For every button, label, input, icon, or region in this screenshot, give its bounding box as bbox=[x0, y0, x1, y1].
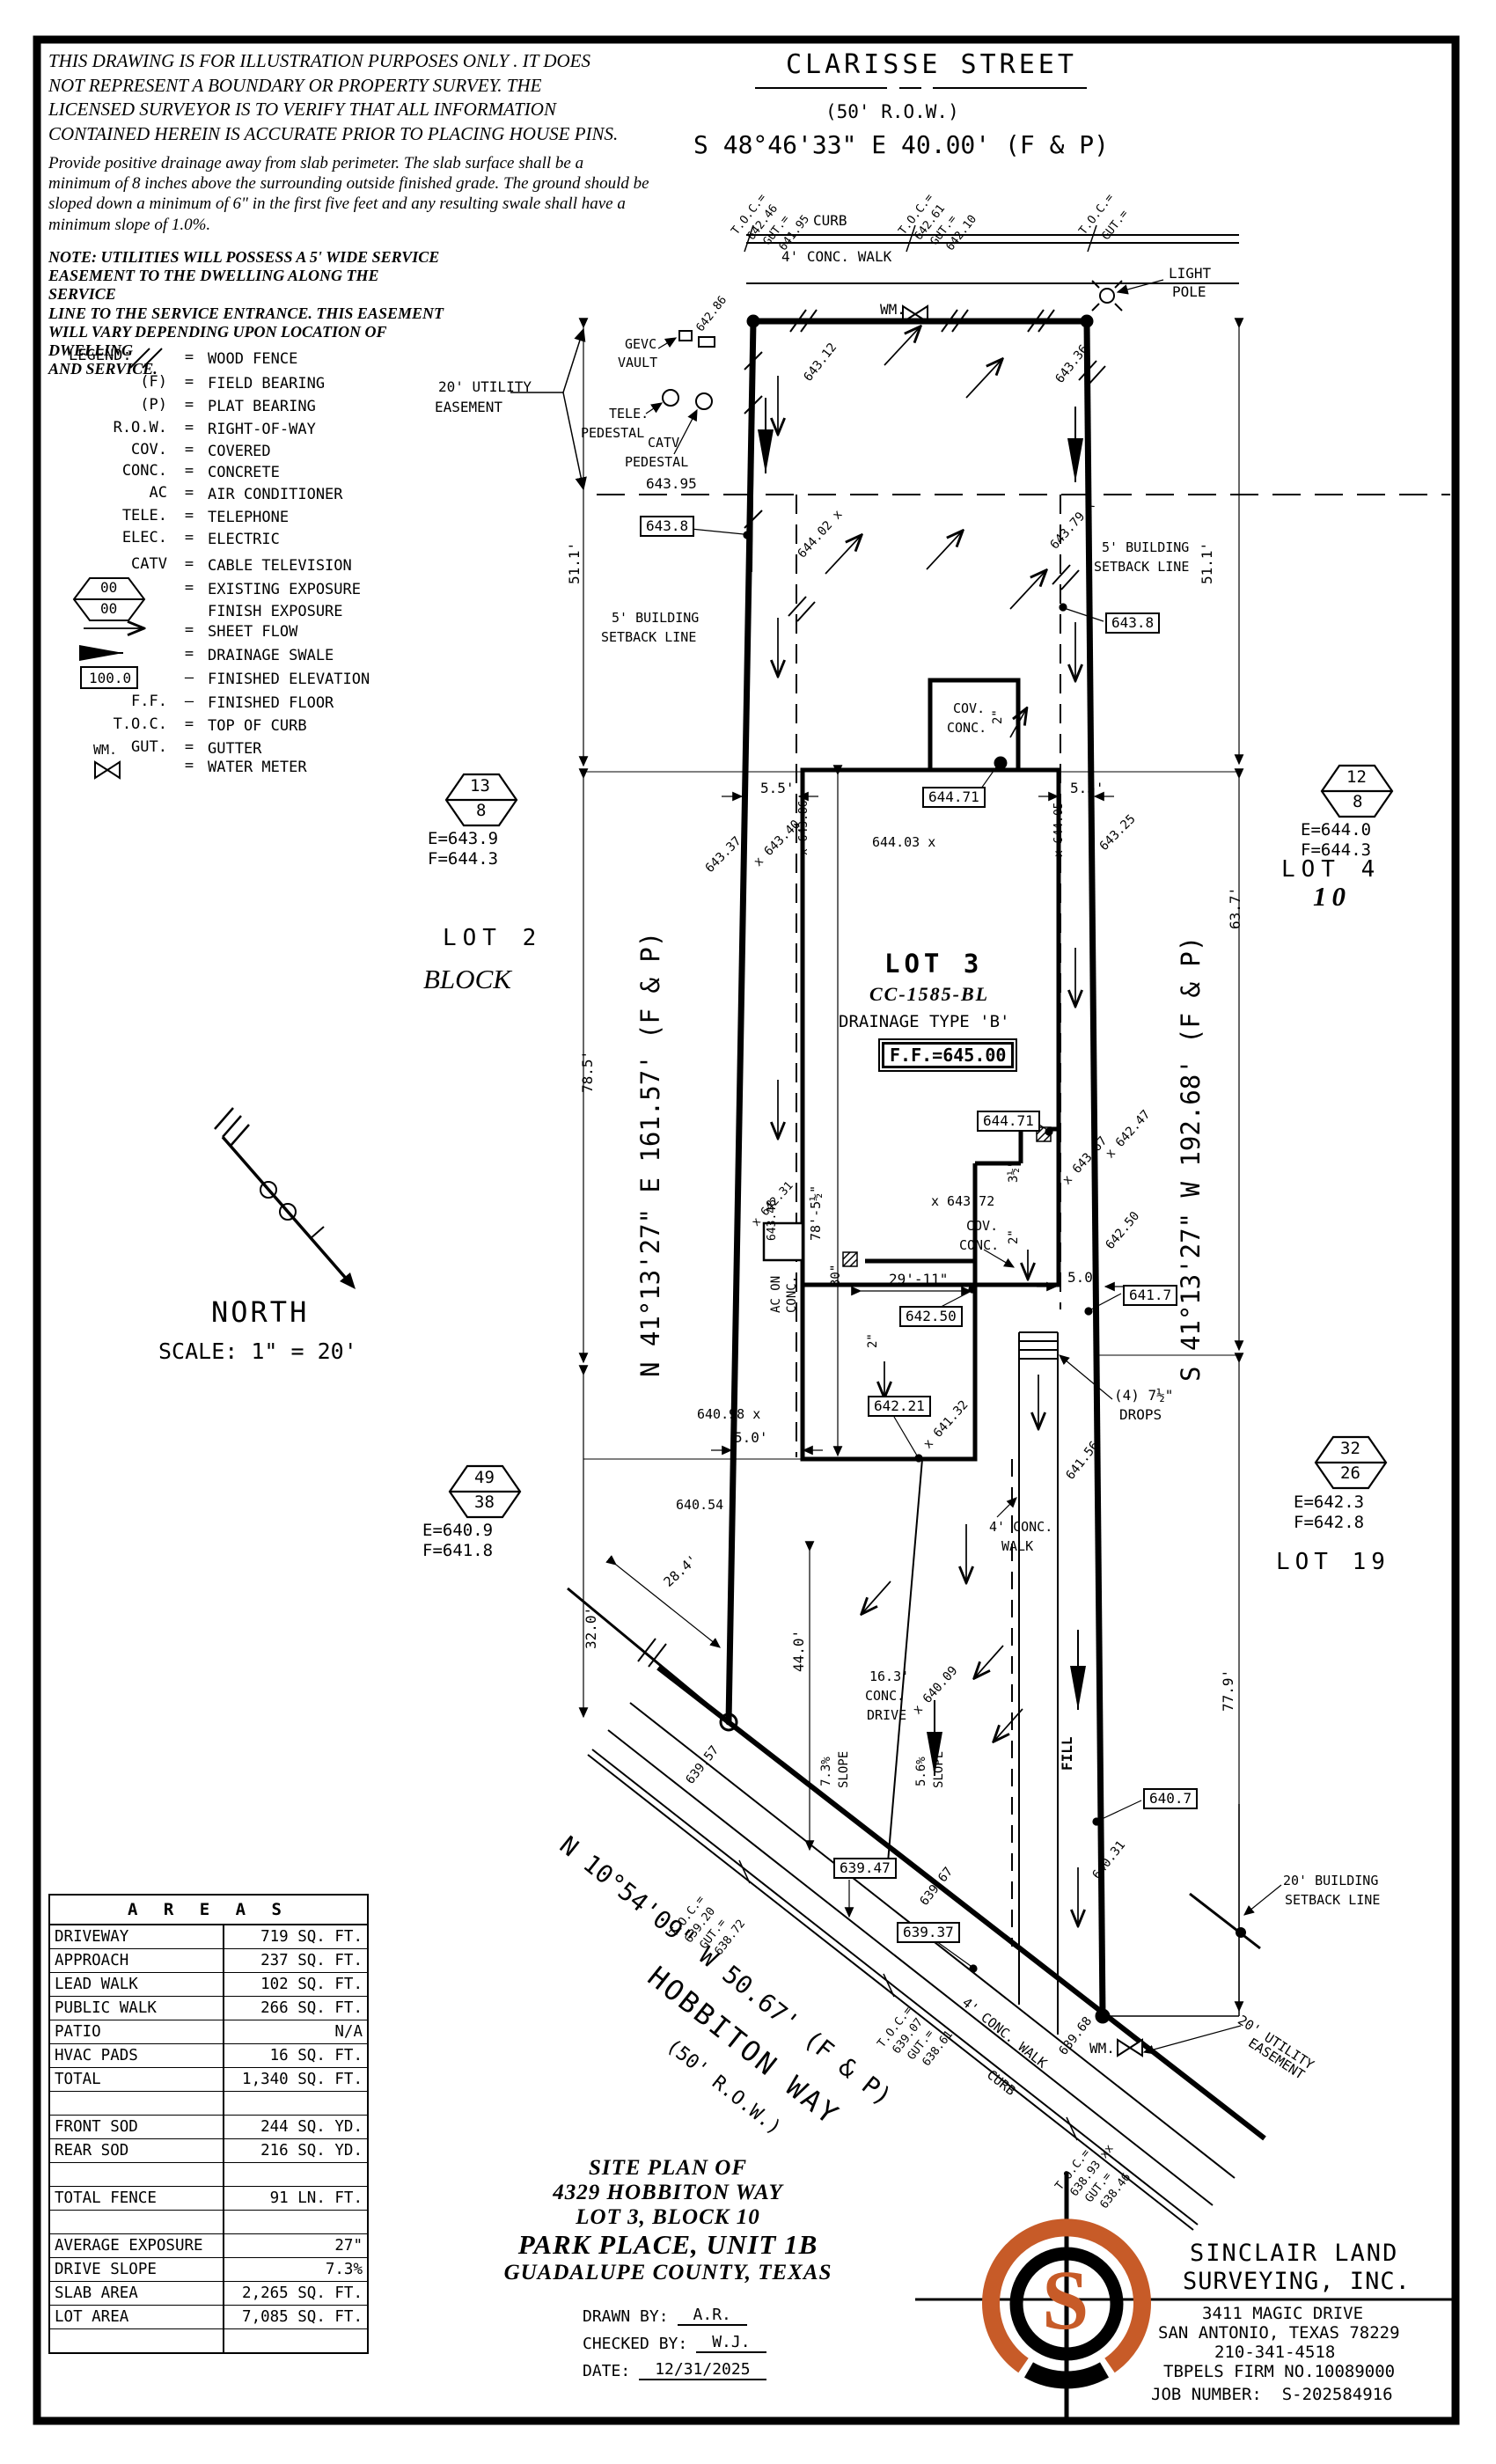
areas-value: 1,340 SQ. FT. bbox=[224, 2068, 368, 2092]
areas-value: 216 SQ. YD. bbox=[224, 2139, 368, 2163]
areas-value: 237 SQ. FT. bbox=[224, 1949, 368, 1973]
areas-value: 7.3% bbox=[224, 2258, 368, 2282]
areas-label: PUBLIC WALK bbox=[49, 1997, 224, 2020]
tele-pedestal-icon bbox=[663, 390, 678, 406]
areas-label bbox=[49, 2163, 224, 2187]
areas-label bbox=[49, 2092, 224, 2116]
areas-row-total-fence: TOTAL FENCE91 LN. FT. bbox=[49, 2187, 368, 2211]
areas-row-blank-12 bbox=[49, 2211, 368, 2234]
wood-fence-icon bbox=[130, 348, 162, 368]
areas-value bbox=[224, 2329, 368, 2354]
water-meter-icon bbox=[95, 762, 120, 778]
title-line-2: 4329 HOBBITON WAY bbox=[458, 2181, 878, 2205]
signoff-value: W.J. bbox=[696, 2333, 766, 2353]
areas-row-drive-slope: DRIVE SLOPE7.3% bbox=[49, 2258, 368, 2282]
areas-label: LOT AREA bbox=[49, 2306, 224, 2329]
signoff-value: 12/31/2025 bbox=[639, 2360, 766, 2380]
areas-value bbox=[224, 2163, 368, 2187]
areas-value: 16 SQ. FT. bbox=[224, 2044, 368, 2068]
areas-label: REAR SOD bbox=[49, 2139, 224, 2163]
areas-label: DRIVEWAY bbox=[49, 1925, 224, 1949]
areas-row-approach: APPROACH237 SQ. FT. bbox=[49, 1949, 368, 1973]
areas-title: A R E A S bbox=[49, 1895, 368, 1925]
areas-row-blank-7 bbox=[49, 2092, 368, 2116]
porch-cov-conc bbox=[930, 680, 1018, 770]
title-line-3: LOT 3, BLOCK 10 bbox=[458, 2205, 878, 2230]
legend-symbols bbox=[74, 348, 162, 778]
areas-row-total: TOTAL1,340 SQ. FT. bbox=[49, 2068, 368, 2092]
areas-row-blank-17 bbox=[49, 2329, 368, 2354]
areas-row-rear-sod: REAR SOD216 SQ. YD. bbox=[49, 2139, 368, 2163]
areas-label: LEAD WALK bbox=[49, 1973, 224, 1997]
areas-label: AVERAGE EXPOSURE bbox=[49, 2234, 224, 2258]
areas-row-hvac-pads: HVAC PADS16 SQ. FT. bbox=[49, 2044, 368, 2068]
entry-stairs bbox=[1019, 1332, 1058, 1359]
house-footprint bbox=[764, 680, 1059, 2035]
areas-table: A R E A S DRIVEWAY719 SQ. FT.APPROACH237… bbox=[48, 1894, 369, 2354]
exposure-hex-icon bbox=[74, 578, 144, 620]
title-line-1: SITE PLAN OF bbox=[458, 2156, 878, 2181]
areas-label: APPROACH bbox=[49, 1949, 224, 1973]
main-slab bbox=[803, 770, 1059, 1285]
areas-label bbox=[49, 2211, 224, 2234]
water-meter-bottom-icon bbox=[1118, 2040, 1142, 2056]
areas-label: HVAC PADS bbox=[49, 2044, 224, 2068]
areas-value: 7,085 SQ. FT. bbox=[224, 2306, 368, 2329]
areas-label: TOTAL FENCE bbox=[49, 2187, 224, 2211]
areas-value bbox=[224, 2092, 368, 2116]
areas-row-front-sod: FRONT SOD244 SQ. YD. bbox=[49, 2116, 368, 2139]
signoff-checked-by-: CHECKED BY:W.J. bbox=[583, 2333, 766, 2353]
areas-value: 2,265 SQ. FT. bbox=[224, 2282, 368, 2306]
areas-row-slab-area: SLAB AREA2,265 SQ. FT. bbox=[49, 2282, 368, 2306]
north-arrow-icon bbox=[215, 1108, 356, 1289]
areas-label: FRONT SOD bbox=[49, 2116, 224, 2139]
areas-label: TOTAL bbox=[49, 2068, 224, 2092]
site-plan-page: THIS DRAWING IS FOR ILLUSTRATION PURPOSE… bbox=[0, 0, 1496, 2464]
catv-pedestal-icon bbox=[696, 393, 712, 409]
areas-value: 102 SQ. FT. bbox=[224, 1973, 368, 1997]
areas-value: 91 LN. FT. bbox=[224, 2187, 368, 2211]
light-pole-icon bbox=[1100, 289, 1114, 303]
clarisse-street-lines bbox=[510, 88, 1239, 489]
areas-label: DRIVE SLOPE bbox=[49, 2258, 224, 2282]
areas-label: PATIO bbox=[49, 2020, 224, 2044]
areas-value: 244 SQ. YD. bbox=[224, 2116, 368, 2139]
areas-value: 719 SQ. FT. bbox=[224, 1925, 368, 1949]
title-line-4: PARK PLACE, UNIT 1B bbox=[458, 2230, 878, 2261]
areas-value: N/A bbox=[224, 2020, 368, 2044]
areas-row-lot-area: LOT AREA7,085 SQ. FT. bbox=[49, 2306, 368, 2329]
signoff-label: DATE: bbox=[583, 2362, 630, 2380]
areas-label: SLAB AREA bbox=[49, 2282, 224, 2306]
signoff-drawn-by-: DRAWN BY:A.R. bbox=[583, 2306, 766, 2326]
surveyor-logo bbox=[915, 2172, 1452, 2418]
signoff-block: DRAWN BY:A.R.CHECKED BY:W.J.DATE:12/31/2… bbox=[583, 2306, 766, 2387]
areas-row-lead-walk: LEAD WALK102 SQ. FT. bbox=[49, 1973, 368, 1997]
hobbiton-street-lines bbox=[588, 1703, 1260, 2230]
areas-value: 266 SQ. FT. bbox=[224, 1997, 368, 2020]
areas-value: 27" bbox=[224, 2234, 368, 2258]
areas-row-average-exposure: AVERAGE EXPOSURE27" bbox=[49, 2234, 368, 2258]
title-line-5: GUADALUPE COUNTY, TEXAS bbox=[458, 2261, 878, 2285]
finished-elevation-icon bbox=[81, 667, 137, 688]
signoff-label: CHECKED BY: bbox=[583, 2335, 687, 2353]
areas-row-patio: PATION/A bbox=[49, 2020, 368, 2044]
ac-pad bbox=[764, 1223, 803, 1260]
areas-label bbox=[49, 2329, 224, 2354]
areas-value bbox=[224, 2211, 368, 2234]
areas-row-driveway: DRIVEWAY719 SQ. FT. bbox=[49, 1925, 368, 1949]
areas-row-public-walk: PUBLIC WALK266 SQ. FT. bbox=[49, 1997, 368, 2020]
signoff-date-: DATE:12/31/2025 bbox=[583, 2360, 766, 2380]
signoff-label: DRAWN BY: bbox=[583, 2307, 669, 2326]
title-block: SITE PLAN OF4329 HOBBITON WAYLOT 3, BLOC… bbox=[458, 2156, 878, 2285]
signoff-value: A.R. bbox=[678, 2306, 747, 2326]
pin-ne bbox=[1081, 315, 1093, 327]
gevc-vault-icon bbox=[679, 331, 692, 341]
garage-slab bbox=[803, 1285, 975, 1459]
areas-row-blank-10 bbox=[49, 2163, 368, 2187]
logo-black-bottom-arc bbox=[1029, 2370, 1104, 2380]
pin-nw bbox=[747, 315, 759, 327]
